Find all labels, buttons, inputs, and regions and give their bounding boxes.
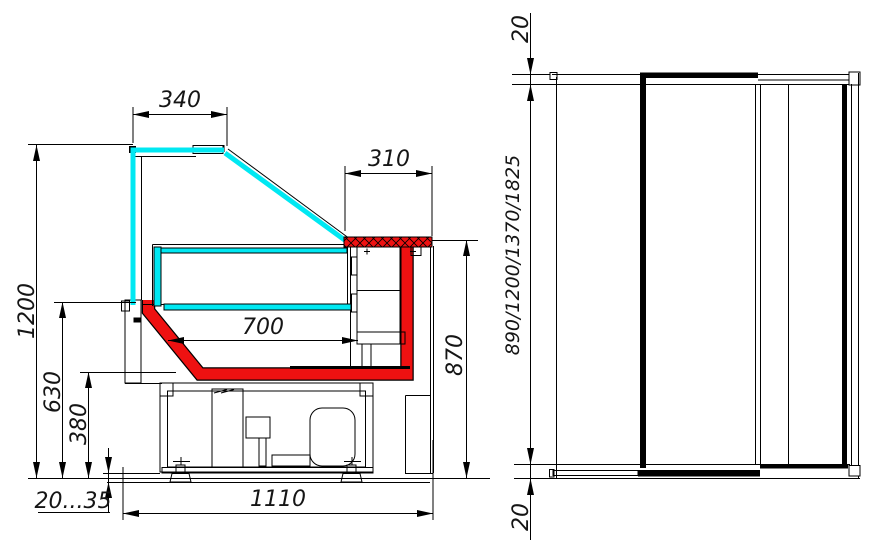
section-structure: [28, 145, 490, 483]
drawing-canvas: 340 310 700 1110 20...35 1200 630 380 87…: [0, 0, 877, 551]
dim-overall-depth: 1110: [250, 487, 306, 512]
dim-canopy-width: 340: [159, 88, 201, 113]
glass-end-strip: [154, 247, 161, 306]
dim-overall-height: 1200: [15, 283, 40, 339]
dim-display-depth: 700: [242, 315, 284, 340]
dim-counter-shelf-depth: 310: [368, 147, 410, 172]
dim-base-height: 380: [67, 403, 92, 445]
front-glass: [131, 148, 347, 306]
front-view: 20 890/1200/1370/1825 20: [502, 13, 860, 540]
dim-worktop-height: 870: [443, 334, 468, 376]
cross-section-view: 340 310 700 1110 20...35 1200 630 380 87…: [15, 88, 490, 520]
technical-drawing: 340 310 700 1110 20...35 1200 630 380 87…: [0, 0, 877, 551]
dim-foot-adjust-range: 20...35: [35, 489, 112, 514]
front-structure: [550, 72, 861, 479]
display-top-shelf: [161, 248, 347, 253]
display-deck: [164, 304, 351, 310]
dim-bottom-offset: 20: [509, 503, 534, 531]
dim-length-options: 890/1200/1370/1825: [502, 155, 524, 356]
dim-front-panel-height: 630: [41, 371, 66, 413]
worktop-hatch: [344, 237, 432, 247]
dim-top-offset: 20: [509, 15, 534, 43]
